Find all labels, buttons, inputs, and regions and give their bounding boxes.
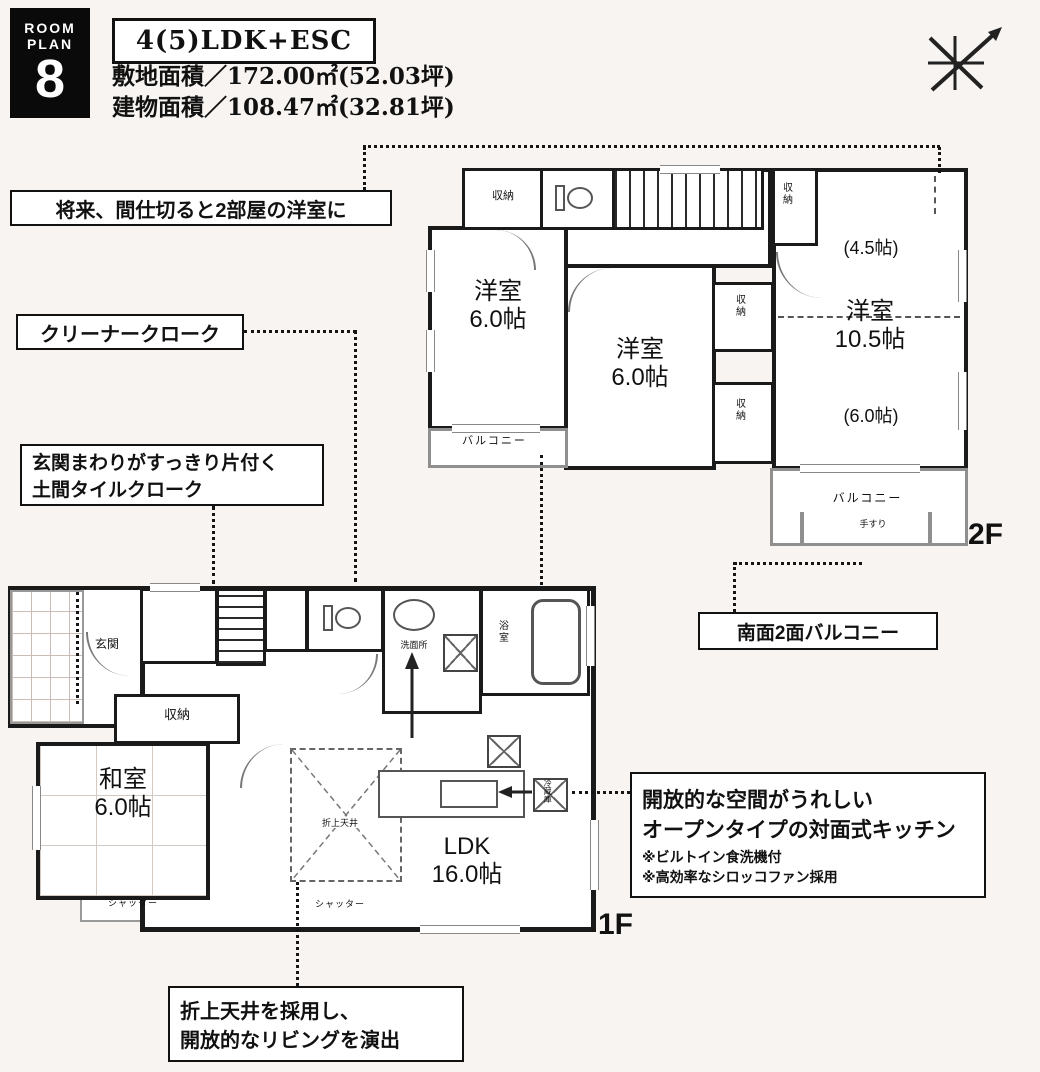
2f-closet-m1-label: 収納	[733, 294, 745, 318]
1f-shutter-b-label: シャッター	[300, 899, 380, 909]
room-size: 6.0帖	[50, 794, 196, 822]
leader-balcony-label-v	[540, 455, 543, 585]
2f-west-room-label: 洋室 6.0帖	[430, 278, 566, 333]
2f-closet-top-label: 収納	[462, 190, 544, 203]
callout-kitchen-note2: ※高効率なシロッコファン採用	[642, 867, 838, 887]
callout-kitchen-line1: 開放的な空間がうれしい	[642, 784, 873, 814]
plan-type-box: 4(5)LDK+ESC	[112, 18, 376, 64]
flow-arrow-up-icon	[402, 652, 422, 740]
site-area: 敷地面積／172.00㎡(52.03坪)	[112, 64, 532, 90]
building-area: 建物面積／108.47㎡(32.81坪)	[112, 95, 532, 121]
toilet-bowl-icon	[567, 187, 593, 209]
window	[586, 606, 595, 666]
window	[958, 372, 967, 430]
callout-ceiling-line2: 開放的なリビングを演出	[180, 1024, 400, 1053]
callout-future-partition: 将来、間仕切ると2部屋の洋室に	[10, 190, 392, 226]
window	[958, 250, 967, 302]
2f-window-dash	[934, 176, 936, 214]
window	[420, 925, 520, 934]
room-size: 6.0帖	[567, 364, 713, 392]
room-name: 洋室	[567, 336, 713, 364]
badge-number: 8	[35, 52, 65, 106]
cupboard-icon	[487, 735, 521, 768]
room-size: 6.0帖	[430, 306, 566, 334]
window	[660, 165, 720, 174]
1f-washroom-label: 洗面所	[384, 640, 444, 650]
callout-cleaner-cloak-text: クリーナークローク	[40, 318, 220, 347]
1f-closet-low-label: 収納	[114, 708, 240, 723]
2f-handrail-post	[800, 512, 804, 546]
callout-kitchen-note1: ※ビルトイン食洗機付	[642, 847, 782, 867]
room-name: 和室	[50, 766, 196, 794]
1f-japanese-room-label: 和室 6.0帖	[50, 766, 196, 821]
kitchen-sink	[440, 780, 498, 808]
2f-balcony-se-label: バルコニー	[800, 492, 935, 506]
2f-handrail-label: 手すり	[838, 519, 908, 529]
compass-icon	[898, 20, 1018, 110]
fridge-label: 冷蔵庫	[543, 779, 552, 803]
plan-type: 4(5)LDK+ESC	[136, 26, 352, 56]
2f-middle-room-label: 洋室 6.0帖	[567, 336, 713, 391]
2f-floor-label: 2F	[968, 518, 1032, 553]
window	[150, 583, 200, 592]
callout-kitchen: 開放的な空間がうれしい オープンタイプの対面式キッチン ※ビルトイン食洗機付 ※…	[630, 772, 986, 898]
leader-south-balcony-h	[734, 562, 862, 565]
2f-handrail-post	[928, 512, 932, 546]
room-size: 10.5帖	[800, 326, 940, 354]
callout-south-balcony-text: 南面2面バルコニー	[737, 618, 899, 645]
1f-closet-hall	[264, 588, 308, 652]
raised-ceiling-label: 折上天井	[308, 818, 372, 828]
2f-closet-ne	[772, 168, 818, 246]
2f-toilet-room	[540, 168, 616, 230]
1f-ldk-label: LDK 16.0帖	[392, 833, 542, 888]
window	[800, 464, 920, 473]
room-size: 16.0帖	[392, 861, 542, 889]
leader-cleaner-v	[354, 330, 357, 582]
window	[590, 820, 599, 890]
2f-east-room-lower-label: (6.0帖)	[806, 406, 936, 427]
leader-south-balcony-v	[733, 562, 736, 612]
leader-future-h	[363, 145, 940, 148]
callout-ceiling-line1: 折上天井を採用し、	[180, 995, 360, 1024]
window	[32, 786, 41, 850]
2f-east-room-label: 洋室 10.5帖	[800, 298, 940, 353]
callout-entrance-line1: 玄関まわりがすっきり片付く	[32, 448, 278, 475]
1f-bath-label: 浴室	[496, 620, 508, 644]
window	[452, 424, 540, 433]
leader-cleaner-h	[244, 330, 356, 333]
leader-future-v2	[938, 147, 941, 173]
1f-closet-entry	[140, 588, 218, 664]
2f-stairs	[612, 168, 764, 230]
callout-south-balcony: 南面2面バルコニー	[698, 612, 938, 650]
1f-toilet-room	[306, 588, 384, 652]
callout-entrance-line2: 土間タイルクローク	[32, 475, 203, 502]
callout-entrance-cloak: 玄関まわりがすっきり片付く 土間タイルクローク	[20, 444, 324, 506]
1f-shutter-a-label: シャッター	[82, 898, 184, 908]
callout-cleaner-cloak: クリーナークローク	[16, 314, 244, 350]
bathtub-icon	[531, 599, 581, 685]
callout-kitchen-line2: オープンタイプの対面式キッチン	[642, 814, 956, 844]
room-name: LDK	[392, 833, 542, 861]
leader-entrance-v1	[212, 506, 215, 584]
badge-line1: ROOM	[24, 20, 76, 36]
callout-raised-ceiling: 折上天井を採用し、 開放的なリビングを演出	[168, 986, 464, 1062]
2f-balcony-sw-label: バルコニー	[432, 435, 557, 448]
room-name: 洋室	[430, 278, 566, 306]
1f-entrance-label: 玄関	[82, 638, 132, 652]
2f-closet-m2	[712, 382, 774, 464]
floor-plan-page: ROOM PLAN 8 4(5)LDK+ESC 敷地面積／172.00㎡(52.…	[0, 0, 1040, 1072]
window	[426, 330, 435, 372]
washing-machine-icon	[443, 634, 478, 672]
leader-ceiling-v	[296, 882, 299, 986]
2f-east-room-upper-label: (4.5帖)	[806, 238, 936, 259]
room-name: 洋室	[800, 298, 940, 326]
toilet-icon	[323, 605, 333, 631]
toilet-bowl-icon	[335, 607, 361, 629]
sink-icon	[393, 599, 435, 631]
1f-porch	[10, 590, 84, 724]
2f-closet-ne-label: 収納	[780, 182, 792, 206]
1f-floor-label: 1F	[598, 908, 662, 943]
leader-entrance-v2	[76, 592, 79, 704]
kitchen-arrow-left-icon	[498, 784, 534, 800]
2f-balcony-sw	[428, 428, 568, 468]
leader-kitchen-h	[572, 791, 630, 794]
1f-stairs	[216, 588, 266, 666]
leader-future-v1	[363, 147, 366, 190]
callout-future-partition-text: 将来、間仕切ると2部屋の洋室に	[55, 194, 346, 223]
toilet-icon	[555, 185, 565, 211]
2f-closet-m2-label: 収納	[733, 398, 745, 422]
room-plan-badge: ROOM PLAN 8	[10, 8, 90, 118]
